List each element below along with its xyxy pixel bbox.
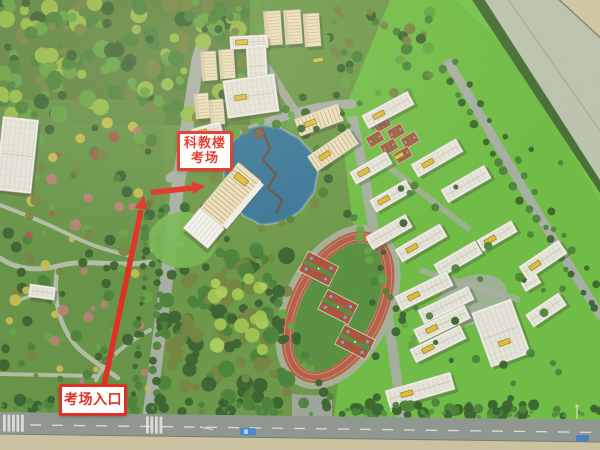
campus-model-photo: 科教楼 考场 考场入口 xyxy=(0,0,600,450)
exam-building-label-line2: 考场 xyxy=(183,151,227,166)
exam-entrance-label: 考场入口 xyxy=(59,384,127,416)
exam-building-label-line1: 科教楼 xyxy=(183,136,227,151)
model-scene xyxy=(0,0,600,450)
exam-entrance-label-text: 考场入口 xyxy=(64,392,122,408)
exam-building-label: 科教楼 考场 xyxy=(177,131,233,171)
